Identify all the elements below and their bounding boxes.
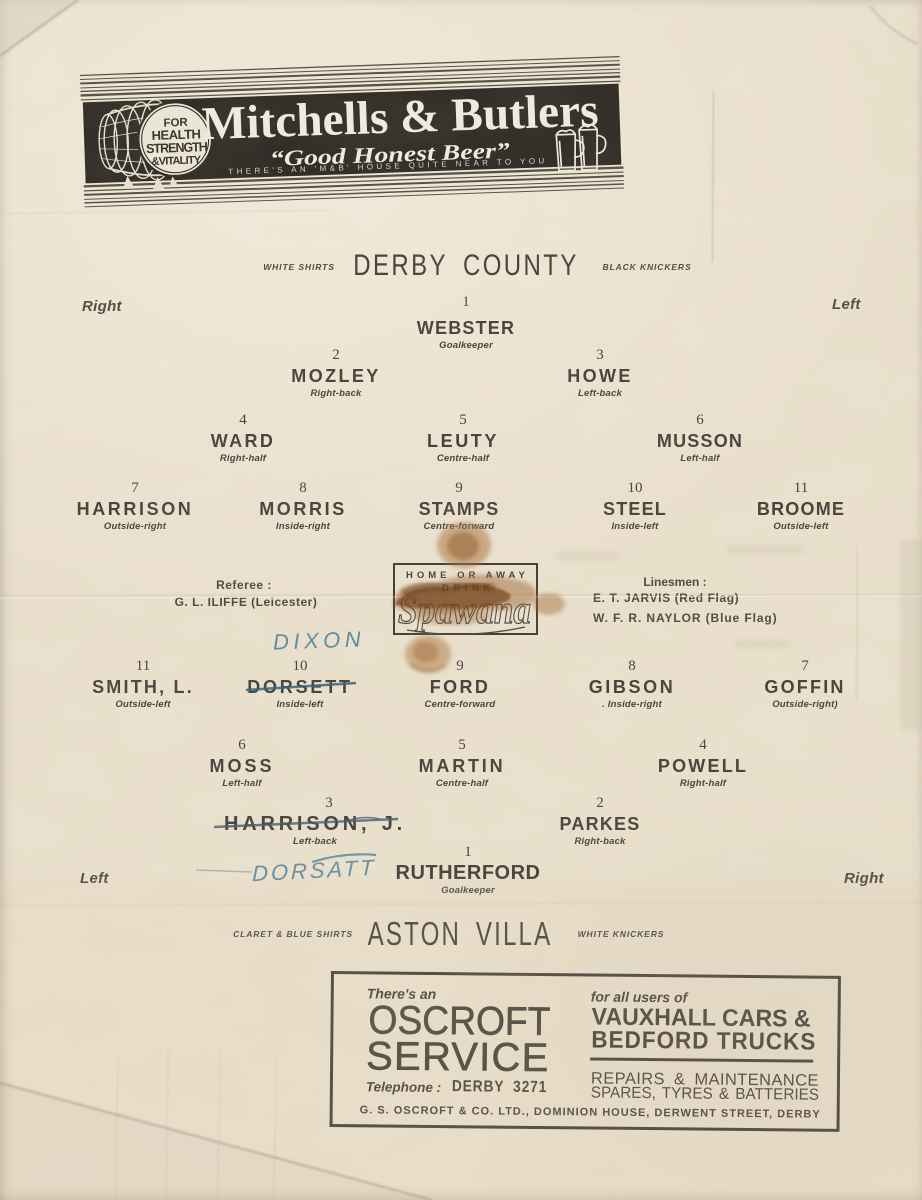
svg-text:Spawana: Spawana — [398, 587, 531, 632]
svg-text:&VITALITY: &VITALITY — [151, 154, 202, 168]
svg-text:HOME OR AWAY: HOME OR AWAY — [406, 570, 529, 581]
